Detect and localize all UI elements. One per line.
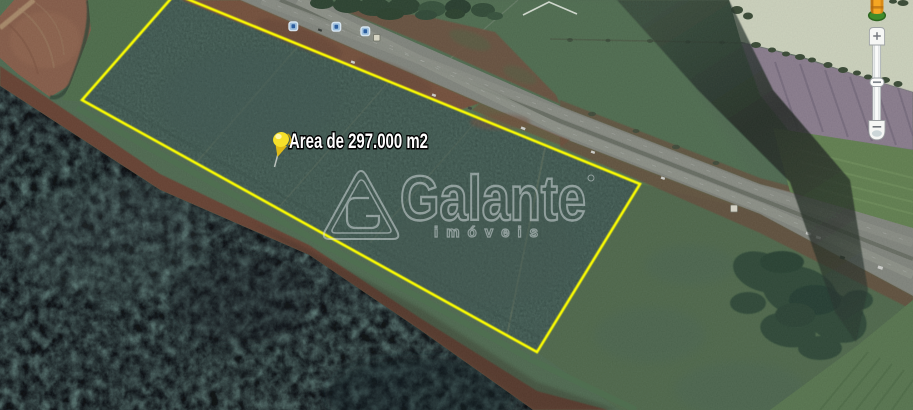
svg-text:imóveis: imóveis [434, 224, 546, 241]
svg-text:Area de 297.000 m2: Area de 297.000 m2 [289, 130, 428, 153]
